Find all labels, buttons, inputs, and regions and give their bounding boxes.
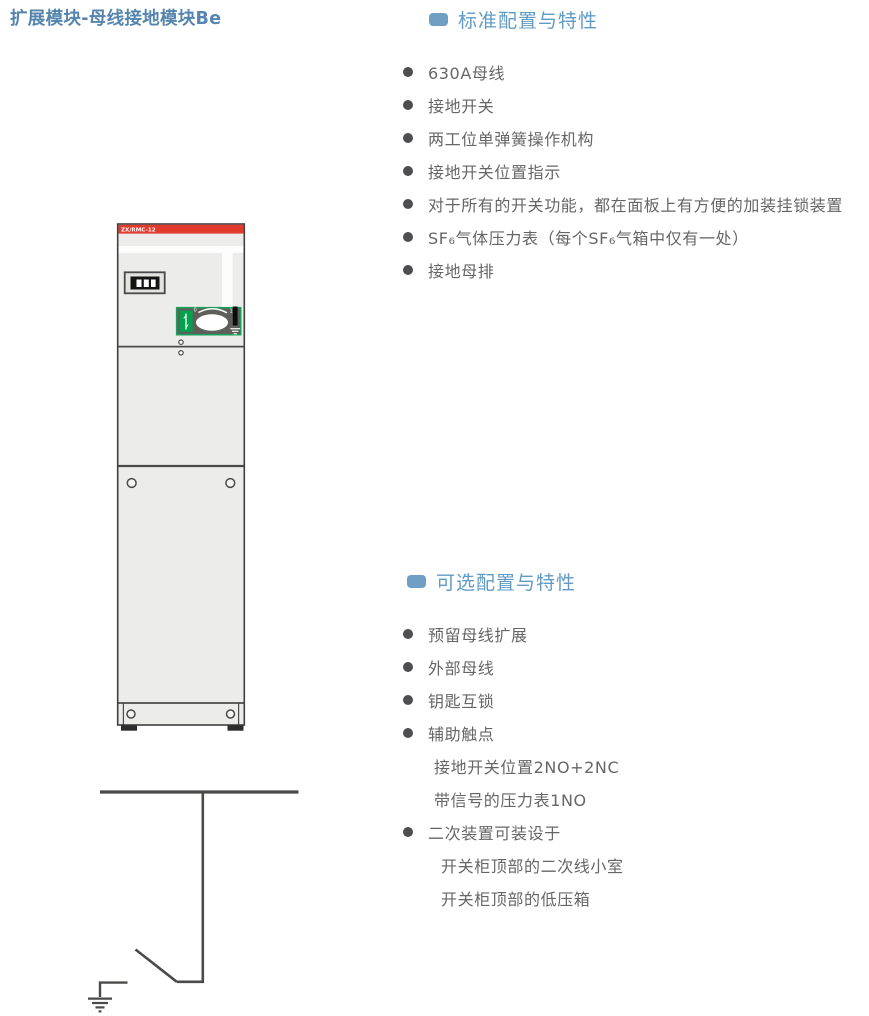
- section-marker-icon: [407, 575, 426, 588]
- list-subitem: 带信号的压力表1NO: [403, 782, 624, 815]
- list-item-label: 接地母排: [428, 258, 494, 282]
- vent-hole-top: [179, 340, 183, 344]
- list-item-label: 两工位单弹簧操作机构: [428, 126, 594, 150]
- bullet-icon: [403, 232, 413, 242]
- list-subitem: 开关柜顶部的低压箱: [403, 881, 624, 914]
- operating-panel: 0 1: [177, 307, 241, 335]
- section-title: 可选配置与特性: [436, 568, 576, 595]
- earth-symbol: [88, 999, 112, 1012]
- bullet-icon: [403, 629, 413, 639]
- section-marker-icon: [429, 13, 448, 26]
- section-title: 标准配置与特性: [458, 6, 598, 33]
- bullet-icon: [403, 695, 413, 705]
- bullet-icon: [403, 827, 413, 837]
- list-item: 接地开关位置指示: [403, 154, 843, 187]
- list-item-label: 二次装置可装设于: [428, 820, 561, 844]
- door-screw-right: [226, 479, 235, 488]
- list-item-label: 开关柜顶部的二次线小室: [441, 853, 624, 877]
- list-item: 630A母线: [403, 55, 843, 88]
- cabinet-body: [118, 224, 245, 725]
- list-item-label: 外部母线: [428, 655, 494, 679]
- list-item-label: 接地开关: [428, 93, 494, 117]
- switch-blade-open: [136, 950, 177, 982]
- cabinet-brand-banner: [119, 225, 244, 234]
- section-header-standard: 标准配置与特性: [429, 6, 598, 33]
- list-item: 预留母线扩展: [403, 617, 624, 650]
- knob-off-label: 0: [194, 308, 197, 314]
- bullet-icon: [403, 662, 413, 672]
- list-item: 接地开关: [403, 88, 843, 121]
- list-item: 两工位单弹簧操作机构: [403, 121, 843, 154]
- section-header-optional: 可选配置与特性: [407, 568, 576, 595]
- earth-stub: [100, 983, 128, 997]
- list-item-label: 带信号的压力表1NO: [434, 787, 587, 811]
- indicator-arrow-ticks: [184, 316, 188, 328]
- mimic-display: [125, 272, 165, 293]
- optional-feature-list: 预留母线扩展 外部母线 钥匙互锁 辅助触点 接地开关位置2NO+2NC 带信号的…: [403, 617, 624, 914]
- standard-feature-list: 630A母线 接地开关 两工位单弹簧操作机构 接地开关位置指示 对于所有的开关功…: [403, 55, 843, 286]
- list-item: 二次装置可装设于: [403, 815, 624, 848]
- switchgear-cabinet-figure: ZX/RMC-12 0 1: [118, 224, 245, 731]
- list-item-label: 辅助触点: [428, 721, 494, 745]
- knob-on-label: 1: [230, 309, 233, 315]
- vent-hole-bottom: [179, 351, 183, 355]
- operating-knob: [196, 314, 228, 330]
- list-item-label: 对于所有的开关功能，都在面板上有方便的加装挂锁装置: [428, 192, 843, 216]
- list-item: 外部母线: [403, 650, 624, 683]
- cabinet-cable-duct: [222, 246, 233, 308]
- door-screw-left: [127, 479, 136, 488]
- lever-earth-glyph: [230, 329, 240, 334]
- catalog-page: { "title": "扩展模块-母线接地模块Be", "sections": …: [0, 0, 869, 1016]
- list-item: 接地母排: [403, 253, 843, 286]
- bullet-icon: [403, 100, 413, 110]
- bullet-icon: [403, 728, 413, 738]
- list-item-label: SF₆气体压力表（每个SF₆气箱中仅有一处）: [428, 225, 749, 249]
- cabinet-model-label: ZX/RMC-12: [121, 227, 156, 233]
- list-item-label: 630A母线: [428, 60, 505, 84]
- page-title: 扩展模块-母线接地模块Be: [10, 5, 221, 30]
- bullet-icon: [403, 199, 413, 209]
- list-item-label: 接地开关位置指示: [428, 159, 561, 183]
- list-item: 钥匙互锁: [403, 683, 624, 716]
- list-item-label: 开关柜顶部的低压箱: [441, 886, 590, 910]
- earthing-switch-schematic: [88, 792, 299, 1011]
- list-item: 辅助触点: [403, 716, 624, 749]
- bullet-icon: [403, 166, 413, 176]
- list-item-label: 预留母线扩展: [428, 622, 528, 646]
- knob-arc: [199, 309, 228, 313]
- list-item: 对于所有的开关功能，都在面板上有方便的加装挂锁装置: [403, 187, 843, 220]
- bullet-icon: [403, 133, 413, 143]
- position-indicator-green: [180, 311, 193, 332]
- earthing-lever: [233, 307, 238, 326]
- conductor-line: [177, 793, 203, 982]
- list-item-label: 钥匙互锁: [428, 688, 494, 712]
- list-subitem: 接地开关位置2NO+2NC: [403, 749, 624, 782]
- list-item-label: 接地开关位置2NO+2NC: [434, 754, 619, 778]
- cabinet-plinth: [118, 703, 244, 731]
- bullet-icon: [403, 67, 413, 77]
- list-item: SF₆气体压力表（每个SF₆气箱中仅有一处）: [403, 220, 843, 253]
- list-subitem: 开关柜顶部的二次线小室: [403, 848, 624, 881]
- bullet-icon: [403, 265, 413, 275]
- cabinet-top-white-band: [119, 246, 244, 253]
